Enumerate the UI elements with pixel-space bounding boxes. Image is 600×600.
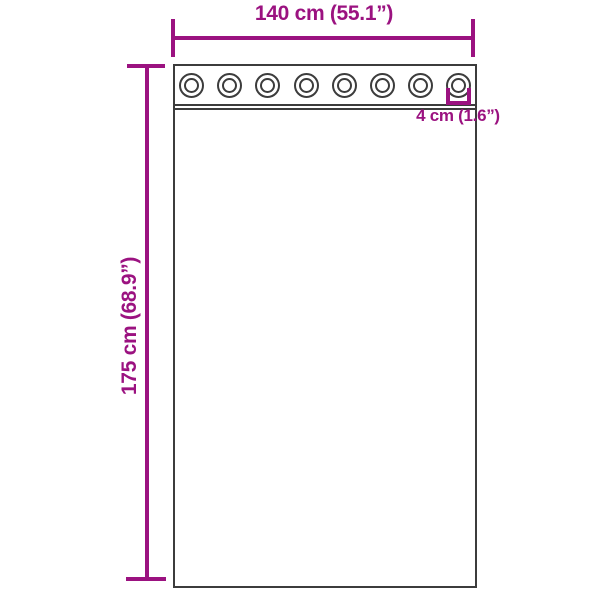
grommet	[217, 73, 242, 98]
grommet-inner-ring	[222, 78, 237, 93]
grommet	[370, 73, 395, 98]
grommet-inner-ring	[375, 78, 390, 93]
grommet	[332, 73, 357, 98]
grommet-dimension-bar	[446, 101, 471, 105]
grommet-inner-ring	[184, 78, 199, 93]
grommet-inner-ring	[451, 78, 466, 93]
grommet	[294, 73, 319, 98]
height-dimension-cap-bottom	[126, 577, 166, 581]
grommet	[179, 73, 204, 98]
grommet-inner-ring	[299, 78, 314, 93]
grommet	[255, 73, 280, 98]
grommet	[408, 73, 433, 98]
height-dimension-cap-top	[127, 64, 165, 68]
grommet-inner-ring	[413, 78, 428, 93]
grommet-dimension-label: 4 cm (1.6”)	[398, 106, 518, 126]
width-dimension-line	[173, 36, 475, 40]
grommet-inner-ring	[337, 78, 352, 93]
width-dimension-label: 140 cm (55.1”)	[173, 2, 475, 26]
grommet-inner-ring	[260, 78, 275, 93]
height-dimension-label-text: 175 cm (68.9”)	[118, 257, 142, 395]
product-dimension-diagram: 140 cm (55.1”) 175 cm (68.9”) 4 cm (1.6”…	[0, 0, 600, 600]
height-dimension-line	[145, 64, 149, 580]
curtain-panel	[173, 64, 477, 588]
